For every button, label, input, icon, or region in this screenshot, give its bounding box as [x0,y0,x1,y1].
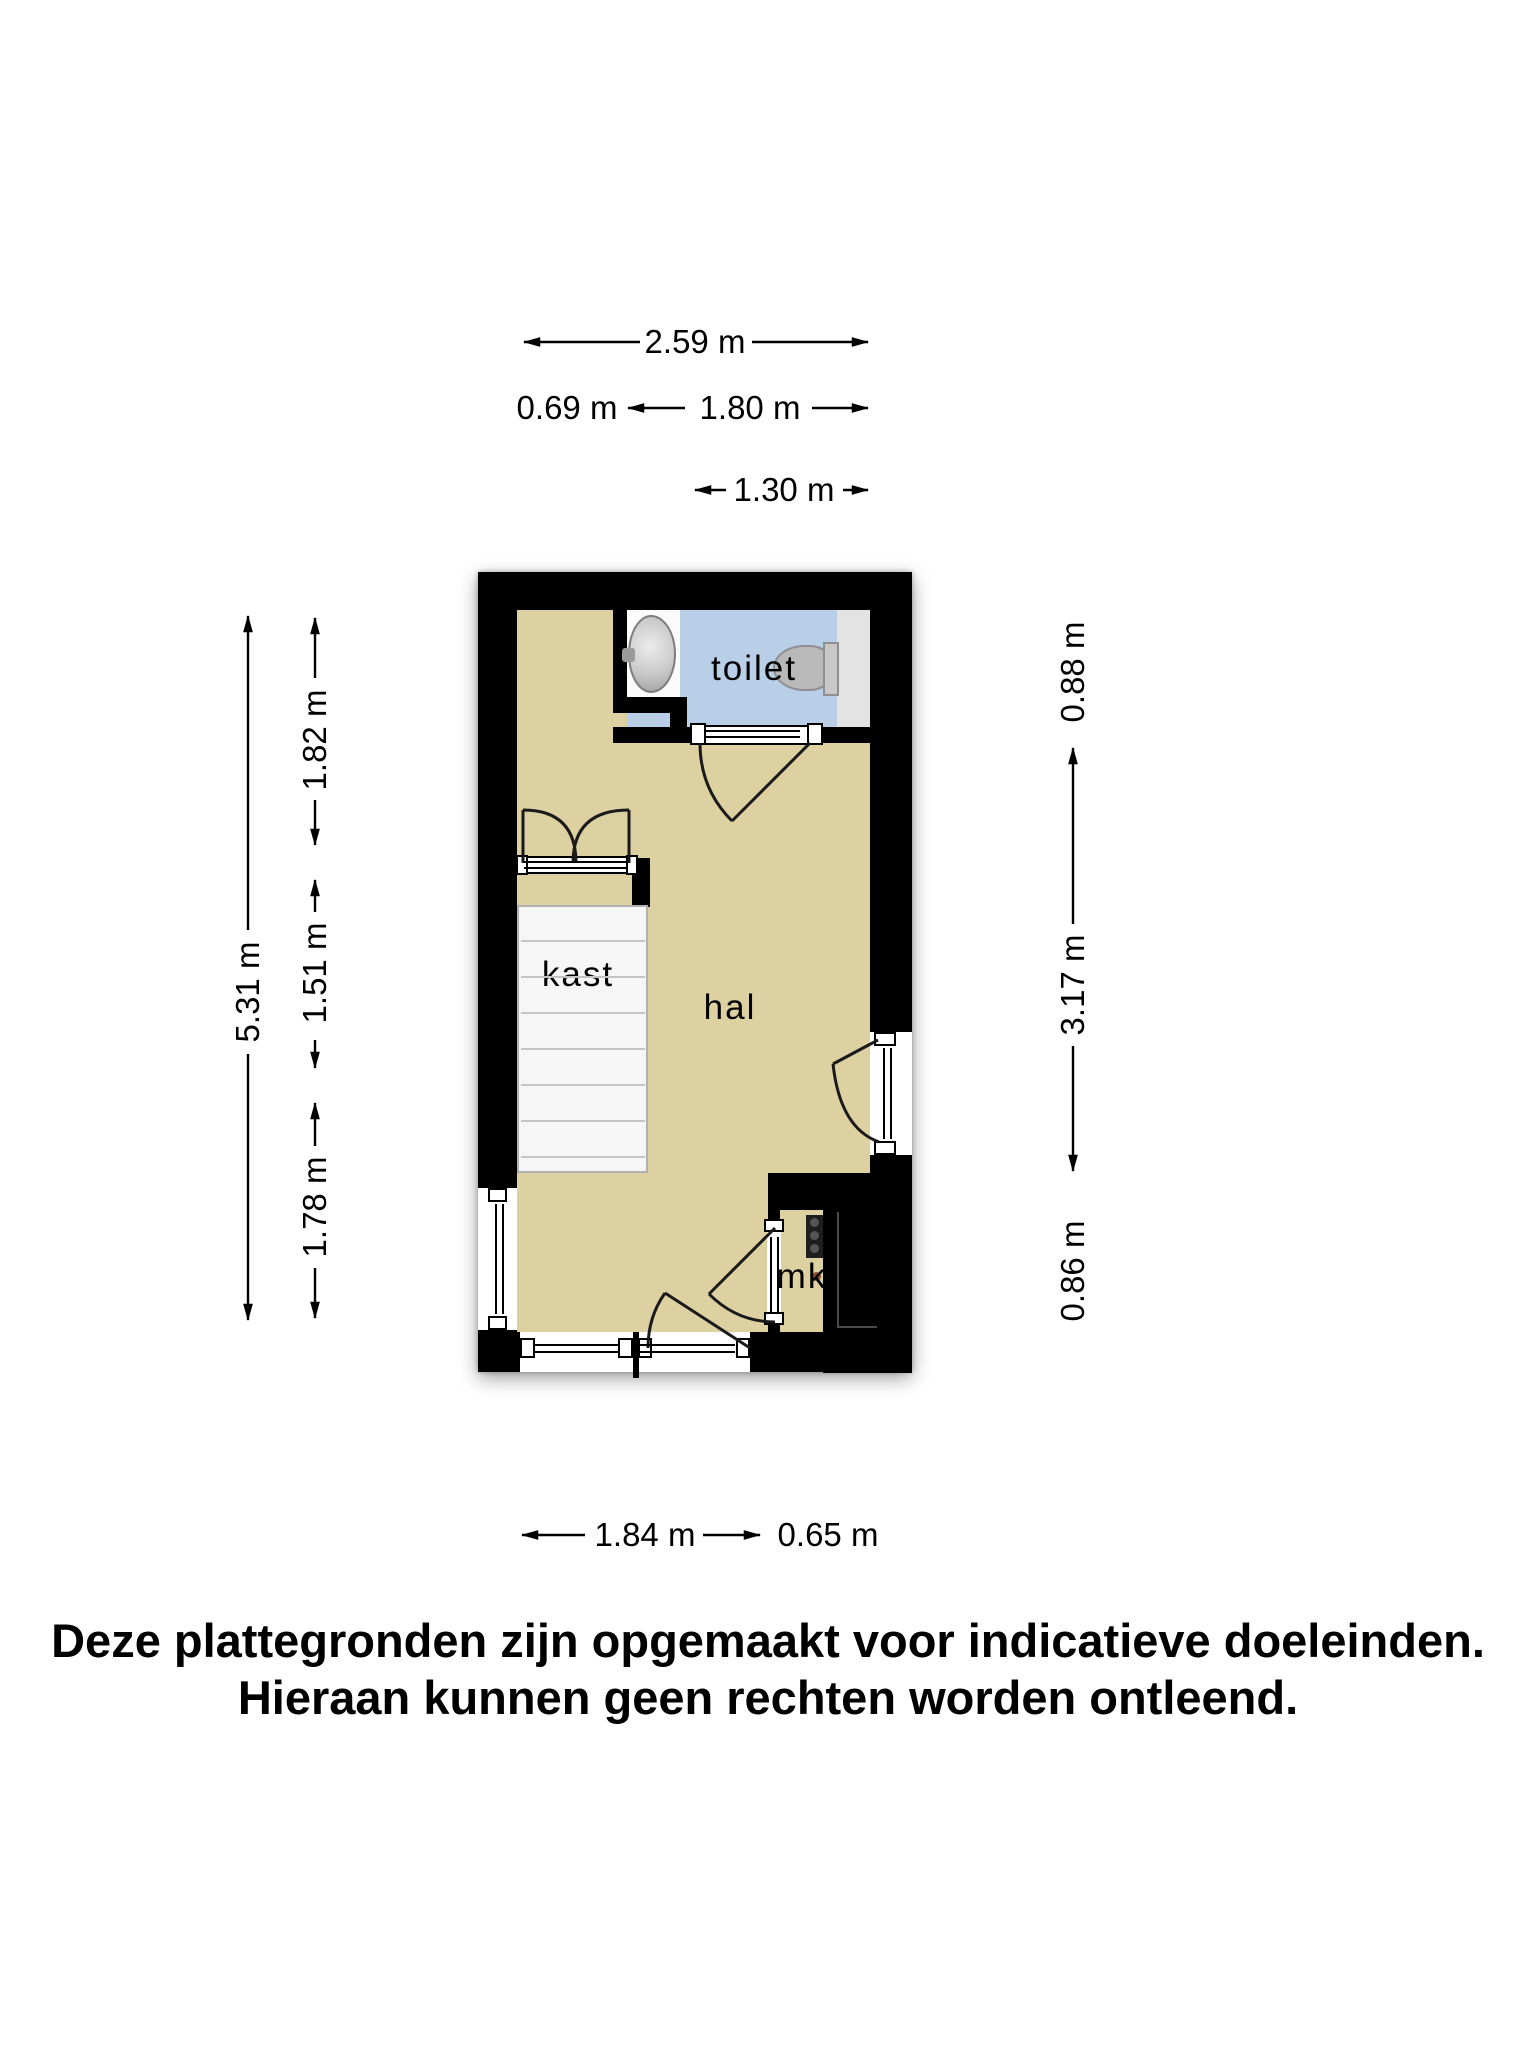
sink-fixture [628,615,676,693]
bottom-door-opening [638,1332,750,1372]
toilet-door-jamb [690,723,706,745]
dim-right-mk: 0.86 m [1054,1221,1092,1322]
room-label-toilet: toilet [711,649,797,689]
toilet-tank [823,642,839,696]
toilet-shaft [837,610,870,727]
disclaimer-line-1: Deze plattegronden zijn opgemaakt voor i… [0,1612,1536,1669]
dim-left-upper: 1.82 m [296,690,334,791]
dim-bottom-mk: 0.65 m [778,1516,879,1554]
room-label-kast: kast [542,955,614,995]
staircase-kast [517,905,648,1173]
disclaimer: Deze plattegronden zijn opgemaakt voor i… [0,1612,1536,1726]
front-door-opening [870,1032,912,1155]
toilet-door-jamb [807,723,823,745]
front-door-jamb [874,1032,896,1046]
dim-top-left: 0.69 m [517,389,618,427]
front-door-jamb [874,1141,896,1155]
void-area [823,1173,912,1373]
bottom-window-opening [520,1332,633,1372]
kast-door-threshold [520,856,632,874]
bottom-door-post [633,1332,639,1378]
dim-right-hal: 3.17 m [1054,935,1092,1036]
dim-right-toilet: 0.88 m [1054,622,1092,723]
dim-left-lower: 1.78 m [296,1157,334,1258]
floorplan-page: toilet kast hal mk [0,0,1536,2048]
mk-door-jamb [764,1312,784,1325]
wall-alcove-horizontal [613,697,687,713]
dim-left-total: 5.31 m [229,942,267,1043]
void-niche-outline [837,1212,877,1328]
room-label-hal: hal [704,988,757,1028]
disclaimer-line-2: Hieraan kunnen geen rechten worden ontle… [0,1669,1536,1726]
toilet-door-opening [697,725,810,745]
left-window-opening [478,1188,517,1330]
dim-top-right: 1.80 m [700,389,801,427]
dim-left-middle: 1.51 m [296,923,334,1024]
mk-door-jamb [764,1219,784,1232]
dim-bottom-hal: 1.84 m [595,1516,696,1554]
bottom-door-jamb [736,1338,750,1358]
kast-door-jamb [626,855,638,875]
room-label-mk: mk [777,1257,828,1297]
bottom-window-jamb [618,1338,633,1358]
floor-plan: toilet kast hal mk [478,572,912,1372]
bottom-window-jamb [520,1338,535,1358]
left-window-jamb [488,1188,507,1202]
left-window-jamb [488,1316,507,1330]
meter-panel [806,1215,823,1258]
faucet-icon [622,648,635,662]
bottom-door-jamb [638,1338,652,1358]
dim-top-toilet: 1.30 m [734,471,835,509]
dim-top-total: 2.59 m [645,323,746,361]
kast-door-jamb [516,855,528,875]
